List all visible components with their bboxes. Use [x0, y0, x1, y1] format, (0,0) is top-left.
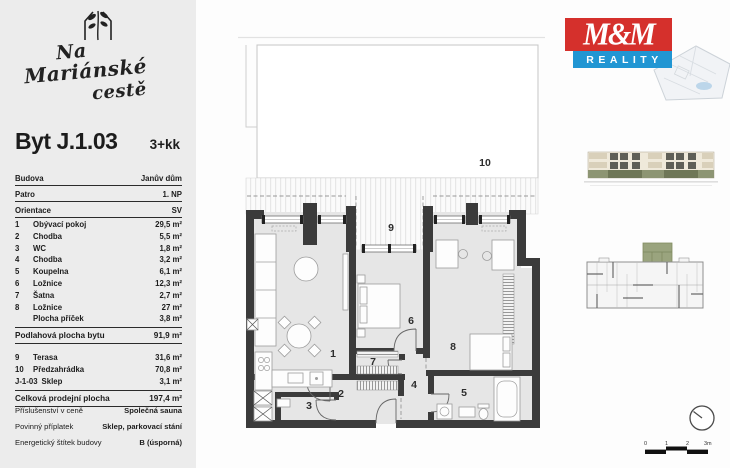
room-number: 7 [15, 290, 29, 302]
room-name: Terasa [33, 352, 155, 364]
detail-value: B (úsporná) [139, 438, 182, 447]
info-value: 1. NP [163, 190, 183, 199]
room-area: 29,5 m² [155, 219, 182, 231]
room-row: 1Obývací pokoj29,5 m² [15, 219, 182, 231]
room-name: Plocha příček [33, 313, 159, 325]
room-name: Sklep [42, 376, 160, 388]
info-label: Patro [15, 190, 35, 199]
info-row: Patro1. NP [15, 186, 182, 202]
wardrobe [503, 274, 514, 344]
room-row: 8Ložnice27 m² [15, 302, 182, 314]
unit-disposition: 3+kk [150, 137, 180, 152]
coffee-table [294, 257, 318, 281]
room-label: 1 [330, 348, 336, 360]
detail-value: Společná sauna [124, 406, 182, 415]
detail-label: Povinný příplatek [15, 422, 73, 431]
room-number: 5 [15, 266, 29, 278]
wardrobe [357, 351, 398, 357]
pillow [503, 353, 510, 367]
room-name: Obývací pokoj [33, 219, 155, 231]
nightstand [357, 329, 365, 337]
kitchen-counter [255, 352, 272, 390]
room-row: 7Šatna2,7 m² [15, 290, 182, 302]
room-number: 1 [15, 219, 29, 231]
room-name: Ložnice [33, 278, 155, 290]
outdoor-row: 10Předzahrádka70,8 m² [15, 364, 182, 376]
bathroom-sink [459, 407, 475, 417]
scale-bar: 0 1 2 3m [640, 436, 720, 460]
toilet [478, 404, 489, 408]
room-area: 5,5 m² [159, 231, 182, 243]
room-row: 4Chodba3,2 m² [15, 254, 182, 266]
room-label: 6 [408, 315, 414, 327]
room-number: 2 [15, 231, 29, 243]
detail-value: Sklep, parkovací stání [102, 422, 182, 431]
info-row: OrientaceSV [15, 202, 182, 218]
pillow [360, 306, 367, 323]
info-label: Budova [15, 174, 44, 183]
scale-tick-label: 1 [665, 441, 668, 447]
room-name: Ložnice [33, 302, 162, 314]
listing-sheet: Na Mariánské cestě Byt J.1.03 3+kk Budov… [0, 0, 730, 468]
room-label: 4 [411, 379, 417, 391]
detail-row: Energetický štítek budovyB (úsporná) [15, 434, 182, 450]
room-number [15, 313, 29, 325]
bathtub [494, 377, 520, 421]
info-row: BudovaJanův dům [15, 170, 182, 186]
room-area: 27 m² [162, 302, 182, 314]
detail-row: Povinný příplatekSklep, parkovací stání [15, 418, 182, 434]
room-row: Plocha příček3,8 m² [15, 313, 182, 325]
garden-step-line [246, 45, 257, 127]
scale-tick-label: 2 [686, 441, 689, 447]
logo-red-box: M&M [565, 18, 672, 51]
outdoor-list: 9Terasa31,6 m² 10Předzahrádka70,8 m² J-1… [15, 352, 182, 406]
room-number: 10 [15, 364, 29, 376]
room-label: 7 [370, 356, 376, 368]
room-row: 5Koupelna6,1 m² [15, 266, 182, 278]
scale-tick-label: 3m [704, 441, 712, 447]
logo-top-text: M&M [583, 17, 654, 53]
plant-house-icon [78, 7, 118, 41]
room-row: 3WC1,8 m² [15, 243, 182, 255]
nightstand [357, 275, 365, 283]
wardrobe [357, 366, 398, 374]
room-number: 8 [15, 302, 29, 314]
floor-key-plan [583, 238, 707, 322]
north-compass-icon [686, 402, 718, 434]
wc-sink [277, 399, 290, 407]
room-row: 6Ložnice12,3 m² [15, 278, 182, 290]
floor-plan: 1 2 3 4 5 6 7 8 9 10 [225, 18, 545, 448]
room-area: 6,1 m² [159, 266, 182, 278]
detail-row: Příslušenství v ceněSpolečná sauna [15, 402, 182, 418]
subtotal-row: Podlahová plocha bytu91,9 m² [15, 327, 182, 344]
room-number: 9 [15, 352, 29, 364]
subtotal-label: Podlahová plocha bytu [15, 331, 105, 340]
toilet [479, 409, 488, 420]
detail-label: Příslušenství v ceně [15, 406, 83, 415]
subtotal-value: 91,9 m² [154, 331, 182, 340]
logo-blue-box: REALITY [573, 51, 672, 68]
room-label: 9 [388, 222, 394, 234]
room-area: 12,3 m² [155, 278, 182, 290]
outdoor-row: J-1-03Sklep3,1 m² [15, 376, 182, 388]
scale-tick-label: 0 [644, 441, 647, 447]
project-name-line3: cestě [91, 79, 147, 105]
room-area: 70,8 m² [155, 364, 182, 376]
details-list: Příslušenství v ceněSpolečná sauna Povin… [15, 402, 182, 450]
room-area: 2,7 m² [159, 290, 182, 302]
detail-label: Energetický štítek budovy [15, 438, 102, 447]
room-label: 3 [306, 400, 312, 412]
room-label: 5 [461, 387, 467, 399]
washing-machine [437, 404, 452, 419]
wardrobe [357, 381, 398, 390]
room-number: 6 [15, 278, 29, 290]
dining-table [287, 324, 311, 348]
info-label: Orientace [15, 206, 51, 215]
desk [436, 240, 458, 268]
room-area: 31,6 m² [155, 352, 182, 364]
room-row: 2Chodba5,5 m² [15, 231, 182, 243]
room-number: J-1-03 [15, 376, 38, 388]
room-name: WC [33, 243, 159, 255]
room-label: 8 [450, 341, 456, 353]
pillow [503, 337, 510, 351]
room-name: Chodba [33, 254, 159, 266]
outdoor-row: 9Terasa31,6 m² [15, 352, 182, 364]
room-label: 10 [479, 157, 491, 169]
kitchen-sink [288, 373, 303, 383]
info-value: SV [172, 206, 182, 215]
room-area: 1,8 m² [159, 243, 182, 255]
agency-logo: M&M REALITY [565, 18, 672, 68]
info-table: BudovaJanův dům Patro1. NP OrientaceSV [15, 170, 182, 218]
room-list: 1Obývací pokoj29,5 m² 2Chodba5,5 m² 3WC1… [15, 219, 182, 407]
front-garden [257, 45, 538, 178]
room-area: 3,1 m² [159, 376, 182, 388]
unit-title: Byt J.1.03 [15, 128, 117, 155]
room-number: 3 [15, 243, 29, 255]
room-name: Koupelna [33, 266, 159, 278]
building-elevation [584, 150, 718, 190]
room-area: 3,8 m² [159, 313, 182, 325]
desk [492, 240, 514, 270]
room-name: Šatna [33, 290, 159, 302]
room-name: Předzahrádka [33, 364, 155, 376]
sidebar: Na Mariánské cestě Byt J.1.03 3+kk Budov… [0, 0, 196, 468]
info-value: Janův dům [141, 174, 182, 183]
tv-board [343, 254, 348, 310]
pillow [360, 287, 367, 304]
room-label: 2 [338, 388, 344, 400]
logo-bottom-text: REALITY [582, 54, 662, 66]
room-area: 3,2 m² [159, 254, 182, 266]
room-number: 4 [15, 254, 29, 266]
room-name: Chodba [33, 231, 159, 243]
